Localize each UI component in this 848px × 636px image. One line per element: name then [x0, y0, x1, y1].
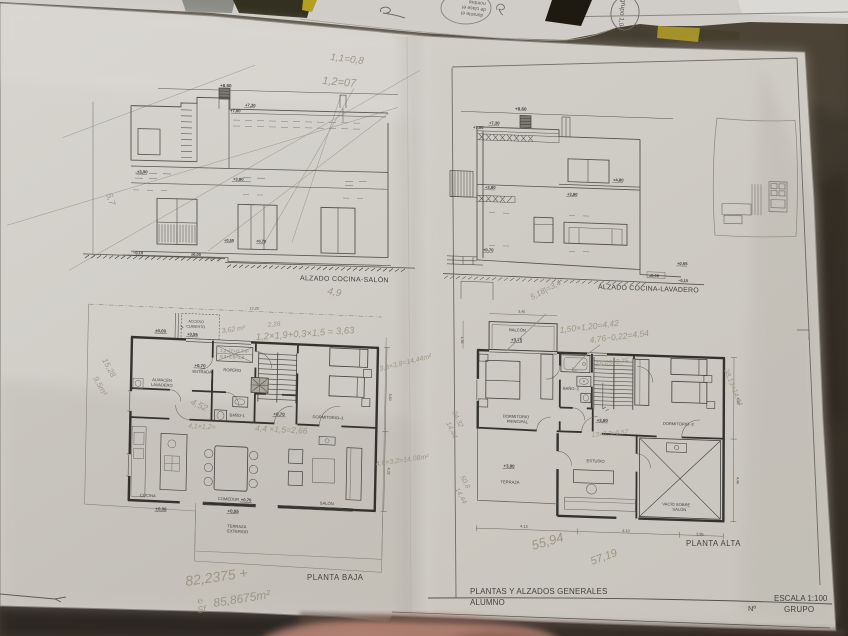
svg-text:ENTRADA: ENTRADA — [192, 369, 212, 375]
svg-text:PLANTA ALTA: PLANTA ALTA — [686, 539, 741, 548]
svg-text:PLANTAS Y ALZADOS GENERALES: PLANTAS Y ALZADOS GENERALES — [470, 587, 607, 596]
svg-text:ALUMNO: ALUMNO — [470, 598, 505, 607]
svg-text:1,2×(7+)3,7m³: 1,2×(7+)3,7m³ — [220, 348, 249, 354]
svg-text:+4,80: +4,80 — [613, 177, 624, 182]
svg-text:DORMITORIO–2: DORMITORIO–2 — [663, 421, 695, 427]
svg-text:+3,80: +3,80 — [485, 185, 496, 190]
svg-text:SALÓN: SALÓN — [320, 501, 334, 507]
svg-text:0,3+0,6=1,8: 0,3+0,6=1,8 — [220, 354, 245, 360]
svg-text:±0,00: ±0,00 — [191, 252, 202, 257]
svg-text:−0,10: −0,10 — [133, 250, 144, 255]
svg-text:−0,10: −0,10 — [678, 278, 689, 283]
svg-text:+3,90: +3,90 — [504, 463, 516, 468]
svg-text:2,28: 2,28 — [266, 321, 281, 329]
svg-text:+8,60: +8,60 — [220, 83, 232, 88]
svg-text:+3,75: +3,75 — [511, 337, 523, 342]
svg-text:COCINA: COCINA — [140, 493, 156, 499]
svg-text:EXTERIOR: EXTERIOR — [227, 528, 248, 534]
svg-text:PRINCIPAL: PRINCIPAL — [507, 419, 529, 425]
svg-text:+0,70: +0,70 — [194, 363, 206, 369]
svg-text:+0,55: +0,55 — [228, 508, 240, 514]
svg-text:BAÑO-1: BAÑO-1 — [229, 412, 245, 418]
svg-text:ACCESO: ACCESO — [188, 320, 204, 325]
svg-text:+0,50: +0,50 — [224, 238, 235, 243]
svg-text:ESTUDIO: ESTUDIO — [587, 458, 605, 464]
svg-text:+0,55: +0,55 — [677, 261, 688, 266]
svg-text:GRUPO: GRUPO — [784, 605, 814, 614]
svg-text:SALÓN: SALÓN — [672, 507, 686, 512]
svg-text:TERRAZA: TERRAZA — [500, 479, 519, 485]
svg-text:+0,70: +0,70 — [483, 247, 494, 252]
svg-text:+0,70: +0,70 — [256, 238, 267, 243]
svg-text:+3,80: +3,80 — [233, 176, 244, 181]
svg-text:PLANTA BAJA: PLANTA BAJA — [307, 573, 364, 582]
svg-text:±0,00: ±0,00 — [649, 273, 660, 278]
svg-text:3,95: 3,95 — [696, 532, 703, 536]
svg-text:+0,55: +0,55 — [187, 331, 198, 336]
svg-text:Nº: Nº — [748, 604, 756, 613]
svg-text:4,13: 4,13 — [520, 525, 527, 529]
svg-text:±0,00: ±0,00 — [155, 328, 167, 334]
svg-text:4,13: 4,13 — [622, 529, 629, 533]
svg-text:+3,90: +3,90 — [137, 169, 148, 174]
svg-text:CUBIERTO: CUBIERTO — [186, 324, 205, 329]
svg-text:nombre: nombre — [468, 0, 486, 6]
svg-text:BAÑO–2: BAÑO–2 — [563, 386, 580, 392]
svg-text:+7,00: +7,00 — [473, 125, 484, 130]
svg-text:+3,80: +3,80 — [597, 418, 609, 423]
svg-text:BALCÓN: BALCÓN — [509, 327, 526, 333]
svg-text:ESCALA 1:100: ESCALA 1:100 — [774, 594, 828, 603]
svg-text:12,20: 12,20 — [250, 306, 259, 310]
svg-text:+7,30: +7,30 — [489, 120, 500, 125]
svg-text:+3,80: +3,80 — [567, 192, 578, 197]
svg-text:±0,00: ±0,00 — [156, 506, 168, 512]
svg-text:COMEDOR: COMEDOR — [218, 496, 240, 502]
svg-text:LAVADERO: LAVADERO — [151, 382, 173, 388]
svg-text:4,46: 4,46 — [735, 477, 739, 484]
svg-text:+0,70: +0,70 — [241, 497, 252, 502]
svg-text:ROPERO: ROPERO — [223, 367, 241, 373]
svg-text:96×3: 96×3 — [256, 382, 266, 387]
svg-text:4,02: 4,02 — [386, 467, 390, 474]
svg-text:3,50: 3,50 — [388, 393, 392, 400]
svg-text:+8,60: +8,60 — [515, 106, 527, 111]
svg-text:3,40: 3,40 — [518, 310, 525, 314]
svg-text:+7,00: +7,00 — [230, 108, 241, 113]
svg-text:4,1×1,2=: 4,1×1,2= — [188, 423, 216, 431]
svg-text:1,30: 1,30 — [460, 336, 464, 343]
svg-text:+0,70: +0,70 — [274, 411, 286, 417]
svg-text:+7,30: +7,30 — [245, 103, 256, 108]
